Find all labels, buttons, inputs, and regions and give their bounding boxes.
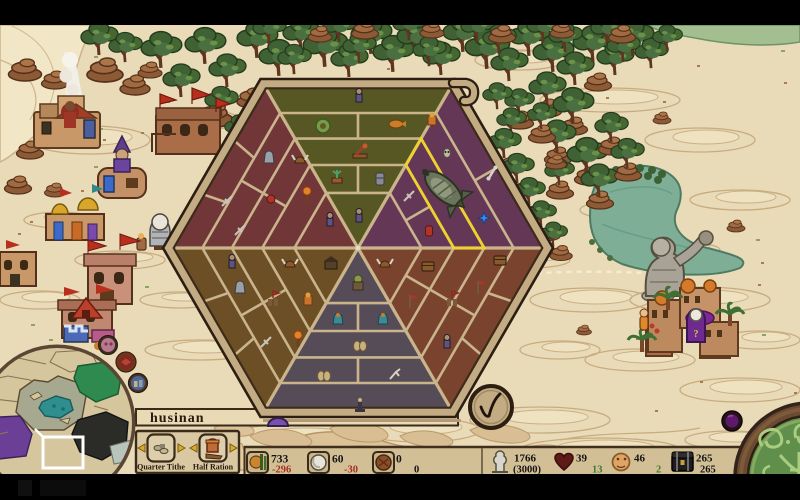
svg-text:-296: -296 — [272, 465, 291, 476]
svg-text:2: 2 — [656, 465, 661, 476]
svg-text:0: 0 — [396, 454, 402, 466]
svg-text:265: 265 — [696, 453, 713, 465]
svg-text:Half Ration: Half Ration — [193, 463, 234, 472]
svg-text:(3000): (3000) — [513, 465, 541, 476]
svg-text:husinan: husinan — [150, 411, 204, 426]
svg-text:13: 13 — [592, 465, 603, 476]
svg-text:Quarter Tithe: Quarter Tithe — [137, 463, 185, 472]
svg-text:1766: 1766 — [514, 453, 537, 465]
svg-text:39: 39 — [576, 453, 588, 465]
svg-text:60: 60 — [332, 454, 344, 466]
svg-text:46: 46 — [634, 453, 646, 465]
svg-text:-30: -30 — [344, 465, 358, 476]
svg-text:?: ? — [694, 329, 699, 340]
svg-text:265: 265 — [700, 465, 716, 476]
svg-text:0: 0 — [414, 465, 419, 476]
